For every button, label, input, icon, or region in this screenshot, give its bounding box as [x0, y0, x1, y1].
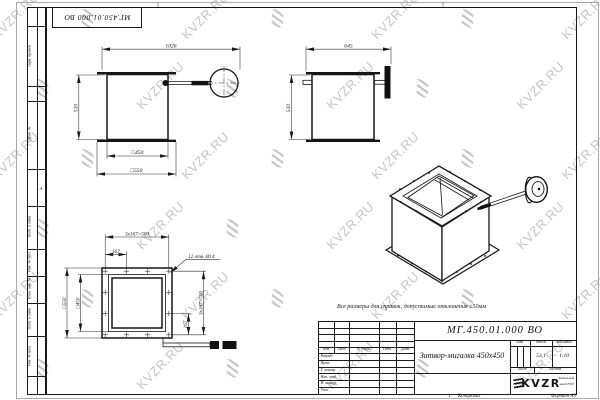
front-view: 1026 510 □450 □550: [74, 44, 242, 177]
dim-flange-holes: 12 отв. Ø14: [188, 253, 215, 260]
tb-part-name: Затвор-мигалка 450x450: [415, 341, 509, 372]
tb-row-tkontr: Т. контр.: [319, 367, 351, 374]
tb-scale-value: 1:10: [552, 346, 576, 368]
footer-sheet-num: 1: [448, 394, 451, 399]
side-shaft: [374, 81, 385, 85]
side-dimensions: 645 510: [286, 44, 391, 140]
front-counterweight: [207, 66, 241, 100]
tb-header-sheets: Листов: [534, 367, 576, 373]
flange-dimensions: 3x167=500 167 12 отв. Ø14 3x167=500 167 …: [62, 231, 220, 338]
top-stamp-doc-number: МГ.450.01.000 ВО: [64, 13, 131, 22]
side-view: 645 510: [286, 44, 391, 141]
flange-view: 3x167=500 167 12 отв. Ø14 3x167=500 167 …: [62, 231, 237, 349]
margin-label-inv-podl: Инв. № подл.: [27, 336, 36, 374]
bolt-holes: [103, 269, 172, 338]
tb-doc-number: МГ.450.01.000 ВО: [414, 323, 576, 339]
dim-front-height: 510: [74, 104, 80, 113]
tb-row-utv: Утв.: [319, 387, 351, 394]
margin-label-vzam-inv: Взам. инв. №: [27, 276, 36, 302]
footer-format: Формат А3: [551, 394, 576, 399]
tb-header-doc: № докум.: [349, 347, 379, 354]
dim-flange-pitch-right: 3x167=500: [198, 291, 204, 315]
dim-front-outer: □550: [131, 168, 143, 174]
iso-counterweight: [525, 177, 547, 203]
tb-header-podp: Подп.: [379, 347, 396, 354]
side-pivot-pin: [303, 80, 312, 84]
tb-row-nkontr: Н. контр.: [319, 380, 351, 387]
drawing-sheet: { "watermark": {"text": "KVZR.RU", "colo…: [0, 0, 600, 400]
tb-header-lit: Лит.: [510, 340, 530, 346]
margin-label-podp-data-2: Подп. и дата: [27, 303, 36, 335]
dim-flange-offset-top: 167: [112, 249, 120, 255]
tb-row-prov: Пров.: [319, 360, 351, 367]
kvzr-logo-text: KVZR: [525, 374, 557, 392]
dim-front-total-width: 1026: [165, 44, 176, 50]
isometric-view: [386, 166, 547, 284]
dim-front-inner: □450: [132, 150, 144, 156]
margin-label-inv-dubl: Инв. № дубл.: [27, 249, 36, 275]
dim-side-width: 645: [344, 44, 353, 50]
title-block: Изм. Лист № докум. Подп. Дата Разраб. Пр…: [318, 321, 577, 395]
front-lever: [163, 80, 213, 86]
flange-shaft-handle: [163, 338, 237, 349]
top-stamp-box: МГ.450.01.000 ВО: [52, 7, 142, 28]
reference-note: Все размеры для справок, допустимые откл…: [337, 304, 486, 310]
dim-flange-pitch-top: 3x167=500: [125, 231, 149, 237]
front-dimensions: 1026 510 □450 □550: [74, 44, 241, 177]
tb-header-data: Дата: [396, 347, 414, 354]
company-line2: завод РЭП: [557, 382, 576, 388]
margin-label-sprav-no: Справ. №: [27, 114, 36, 154]
tb-row-nachotd: Нач. отд.: [319, 373, 351, 380]
tb-mass-value: 53,1: [530, 346, 552, 368]
tb-header-sheet: Лист: [510, 367, 534, 373]
margin-label-podp-data-1: Подп. и дата: [27, 207, 36, 247]
footer-copied: Копировал: [458, 394, 480, 399]
side-counterweight-edge: [385, 66, 391, 99]
dim-flange-offset-right: 167: [183, 320, 189, 328]
dim-flange-inner: □450: [74, 297, 81, 308]
tb-row-razrab: Разраб.: [319, 353, 351, 360]
zone-marker: А: [37, 185, 45, 193]
dim-flange-outer: □550: [62, 297, 68, 308]
dim-side-height: 510: [286, 104, 292, 113]
margin-label-perv-primen: Перв. примен.: [27, 27, 36, 83]
